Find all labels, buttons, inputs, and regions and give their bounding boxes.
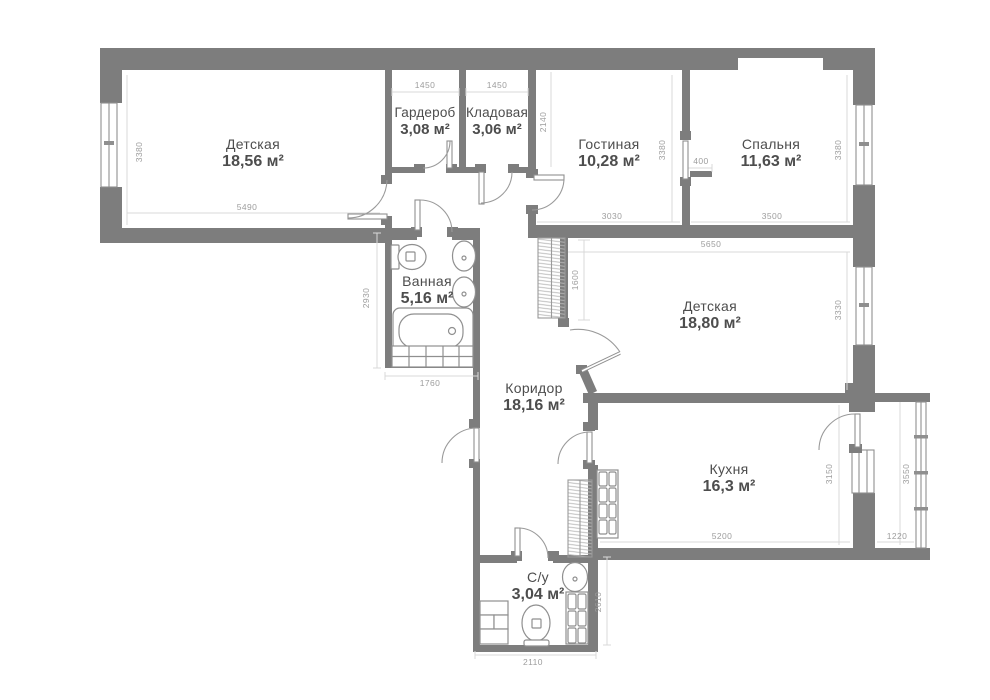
room-label-gostinaya: Гостиная [578,136,639,152]
dim-label: 5490 [237,202,258,212]
room-area-gostinaya: 10,28 м² [578,153,640,170]
dim-label: 3380 [134,142,144,163]
dim-label: 5650 [701,239,722,249]
dim-label: 1760 [420,378,441,388]
window-icon [856,105,872,185]
dim-label: 3330 [833,300,843,321]
room-area-kuhnya: 16,3 м² [703,478,756,495]
toilet-icon [391,245,426,270]
dim-label: 400 [693,156,708,166]
room-label-spalnya: Спальня [742,136,800,152]
wardrobe-icon [538,238,565,318]
room-label-su: С/у [527,569,549,585]
dim-label: 3380 [657,140,667,161]
dim-label: 3380 [833,140,843,161]
room-label-vannaya: Ванная [402,273,452,289]
walls [100,48,930,652]
room-area-detskaya-1: 18,56 м² [222,153,284,170]
dim-label: 2610 [593,592,603,613]
dim-label: 3030 [602,211,623,221]
dim-label: 1450 [487,80,508,90]
floor-plan: Детская 18,56 м² Гардероб 3,08 м² Кладов… [0,0,990,700]
dim-label: 3500 [762,211,783,221]
bathroom-cabinet-icon [392,346,473,367]
room-area-kladovaya: 3,06 м² [472,121,521,138]
window-icon [856,267,872,345]
window-icon [101,103,117,187]
dim-label: 2930 [361,288,371,309]
room-label-garderob: Гардероб [395,105,456,120]
sink-icon [453,241,476,271]
room-area-spalnya: 11,63 м² [741,153,802,170]
room-area-detskaya-2: 18,80 м² [679,315,741,332]
wc-cabinet-icon [566,592,588,644]
room-label-kuhnya: Кухня [710,461,749,477]
dim-label: 3150 [824,464,834,485]
wc-sink-icon [563,563,588,592]
dim-label: 3550 [901,464,911,485]
room-labels: Детская 18,56 м² Гардероб 3,08 м² Кладов… [222,105,801,603]
room-label-detskaya-2: Детская [683,298,737,314]
room-area-vannaya: 5,16 м² [401,290,454,307]
wardrobe-icon [568,480,592,557]
dim-label: 1450 [415,80,436,90]
room-area-su: 3,04 м² [512,586,565,603]
dim-label: 1220 [887,531,908,541]
toilet-icon [522,605,550,646]
dim-label: 2110 [523,657,543,667]
room-label-detskaya-1: Детская [226,136,280,152]
room-label-koridor: Коридор [505,380,562,396]
wc-shelf-icon [480,601,508,644]
window-icon [852,450,874,493]
room-area-koridor: 18,16 м² [503,397,565,414]
room-label-kladovaya: Кладовая [466,105,528,120]
dim-label: 5200 [712,531,733,541]
kitchen-cabinet-icon [597,470,618,538]
balcony-glazing-icon [914,402,928,548]
dim-label: 2140 [538,112,548,133]
room-area-garderob: 3,08 м² [400,121,449,138]
sink-icon [453,277,476,307]
dim-label: 1600 [570,270,580,291]
